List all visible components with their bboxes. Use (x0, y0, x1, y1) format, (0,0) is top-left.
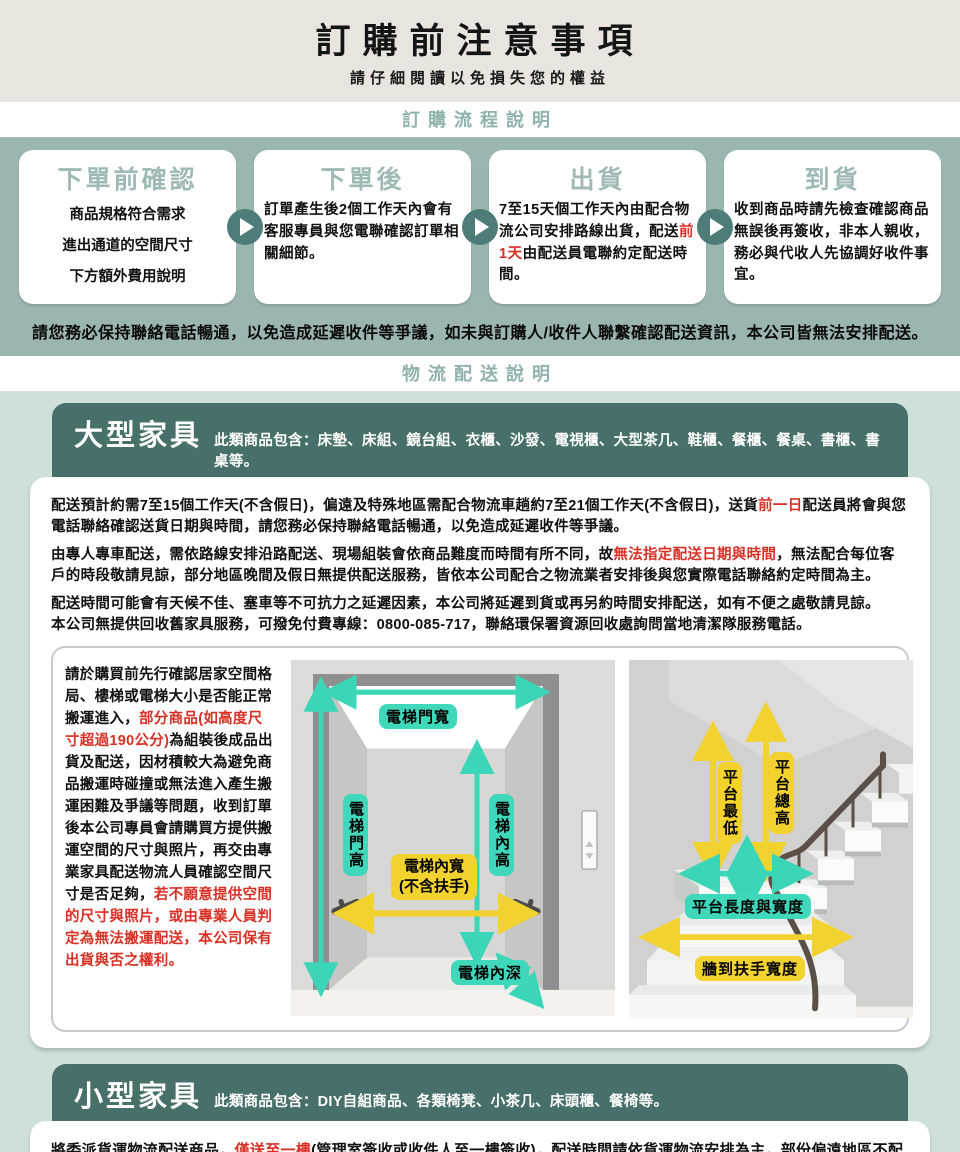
section-title-order-process: 訂購流程說明 (0, 102, 960, 137)
small-furniture-header: 小型家具 此類商品包含：DIY自組商品、各類椅凳、小茶几、床頭櫃、餐椅等。 (52, 1064, 908, 1129)
block-includes: 此類商品包含：床墊、床組、鏡台組、衣櫃、沙發、電視櫃、大型茶几、鞋櫃、餐櫃、餐桌… (214, 429, 886, 471)
small-furniture-body: 將委派貨運物流配送商品，僅送至一樓(管理室簽收或收件人至一樓簽收)，配送時間請依… (30, 1121, 930, 1152)
label-elevator-inner-depth: 電梯內深 (451, 960, 529, 985)
step-line: 下方額外費用說明 (27, 262, 228, 293)
measurement-diagram-box: 請於購買前先行確認居家空間格局、樓梯或電梯大小是否能正常搬運進入，部分商品(如高… (51, 646, 909, 1032)
step-card-delivery: 到貨 收到商品時請先檢查確認商品無誤後再簽收，非本人親收，務必與代收人先協調好收… (724, 150, 941, 304)
pre-order-notice-page: 訂購前注意事項 請仔細閱讀以免損失您的權益 訂購流程說明 下單前確認 商品規格符… (0, 0, 960, 1152)
page-subtitle: 請仔細閱讀以免損失您的權益 (0, 67, 960, 88)
arrow-right-icon (697, 209, 733, 245)
section-title-logistics: 物流配送說明 (0, 356, 960, 391)
step-text: 7至15天個工作天內由配合物流公司安排路線出貨，配送前1天由配送員電聯約定配送時… (497, 200, 698, 287)
label-wall-to-rail: 牆到扶手寬度 (695, 956, 805, 981)
small-furniture-block: 小型家具 此類商品包含：DIY自組商品、各類椅凳、小茶几、床頭櫃、餐椅等。 將委… (30, 1064, 930, 1152)
step-line: 進出通道的空間尺寸 (27, 231, 228, 262)
step-card-before-order: 下單前確認 商品規格符合需求 進出通道的空間尺寸 下方額外費用說明 (19, 150, 236, 304)
arrow-right-icon (462, 209, 498, 245)
step-lines: 商品規格符合需求 進出通道的空間尺寸 下方額外費用說明 (27, 200, 228, 294)
block-title: 大型家具 (74, 412, 202, 454)
page-header: 訂購前注意事項 請仔細閱讀以免損失您的權益 (0, 0, 960, 102)
block-includes: 此類商品包含：DIY自組商品、各類椅凳、小茶几、床頭櫃、餐椅等。 (214, 1090, 668, 1111)
label-platform-total: 平台總高 (769, 752, 794, 834)
block-title: 小型家具 (74, 1073, 202, 1115)
order-process-section: 下單前確認 商品規格符合需求 進出通道的空間尺寸 下方額外費用說明 下單後 訂單… (0, 137, 960, 356)
label-elevator-inner-height: 電梯內高 (489, 794, 514, 876)
paragraph-delay: 配送時間可能會有天候不佳、塞車等不可抗力之延遲因素，本公司將延遲到貨或再另約時間… (51, 594, 909, 615)
step-text: 訂單產生後2個工作天內會有客服專員與您電聯確認訂單相關細節。 (262, 200, 463, 265)
stairs-diagram: 平台最低 平台總高 平台長度與寬度 牆到扶手寬度 (629, 660, 913, 1018)
step-title: 到貨 (732, 160, 933, 196)
paragraph-no-schedule: 由專人專車配送，需依路線安排沿路配送、現場組裝會依商品難度而時間有所不同，故無法… (51, 545, 909, 587)
label-elevator-door-height: 電梯門高 (343, 794, 368, 876)
space-check-text: 請於購買前先行確認居家空間格局、樓梯或電梯大小是否能正常搬運進入，部分商品(如高… (65, 660, 277, 1018)
label-platform-length-width: 平台長度與寬度 (685, 894, 811, 919)
step-title: 出貨 (497, 160, 698, 196)
step-title: 下單後 (262, 160, 463, 196)
play-triangle-icon (240, 218, 254, 236)
large-furniture-header: 大型家具 此類商品包含：床墊、床組、鏡台組、衣櫃、沙發、電視櫃、大型茶几、鞋櫃、… (52, 403, 908, 485)
step-text: 收到商品時請先檢查確認商品無誤後再簽收，非本人親收，務必與代收人先協調好收件事宜… (732, 200, 933, 287)
paragraph-recycle-hotline: 本公司無提供回收舊家具服務，可撥免付費專線：0800-085-717，聯絡環保署… (51, 615, 909, 636)
arrow-right-icon (227, 209, 263, 245)
step-line: 商品規格符合需求 (27, 200, 228, 231)
highlight-red-text: 僅送至一樓 (235, 1142, 312, 1152)
step-card-after-order: 下單後 訂單產生後2個工作天內會有客服專員與您電聯確認訂單相關細節。 (254, 150, 471, 304)
large-furniture-block: 大型家具 此類商品包含：床墊、床組、鏡台組、衣櫃、沙發、電視櫃、大型茶几、鞋櫃、… (30, 403, 930, 1048)
paragraph-delivery-days: 配送預計約需7至15個工作天(不含假日)，偏遠及特殊地區需配合物流車趟約7至21… (51, 496, 909, 538)
highlight-red-text: 前一日 (758, 498, 802, 514)
page-title: 訂購前注意事項 (0, 13, 960, 64)
logistics-section: 大型家具 此類商品包含：床墊、床組、鏡台組、衣櫃、沙發、電視櫃、大型茶几、鞋櫃、… (0, 391, 960, 1152)
label-platform-min: 平台最低 (717, 762, 742, 844)
play-triangle-icon (710, 218, 724, 236)
step-card-shipping: 出貨 7至15天個工作天內由配合物流公司安排路線出貨，配送前1天由配送員電聯約定… (489, 150, 706, 304)
large-furniture-body: 配送預計約需7至15個工作天(不含假日)，偏遠及特殊地區需配合物流車趟約7至21… (30, 477, 930, 1048)
step-title: 下單前確認 (27, 160, 228, 196)
elevator-diagram: 電梯門寬 電梯門高 電梯內高 電梯內寬 (不含扶手) 電梯內深 (291, 660, 615, 1016)
process-steps: 下單前確認 商品規格符合需求 進出通道的空間尺寸 下方額外費用說明 下單後 訂單… (8, 150, 952, 304)
label-elevator-door-width: 電梯門寬 (379, 704, 457, 729)
play-triangle-icon (475, 218, 489, 236)
label-elevator-inner-width: 電梯內寬 (不含扶手) (391, 854, 477, 901)
highlight-red-text: 無法指定配送日期與時間 (613, 547, 776, 563)
process-notice: 請您務必保持聯絡電話暢通，以免造成延遲收件等爭議，如未與訂購人/收件人聯繫確認配… (8, 304, 952, 356)
paragraph-small-furniture: 將委派貨運物流配送商品，僅送至一樓(管理室簽收或收件人至一樓簽收)，配送時間請依… (51, 1140, 909, 1152)
